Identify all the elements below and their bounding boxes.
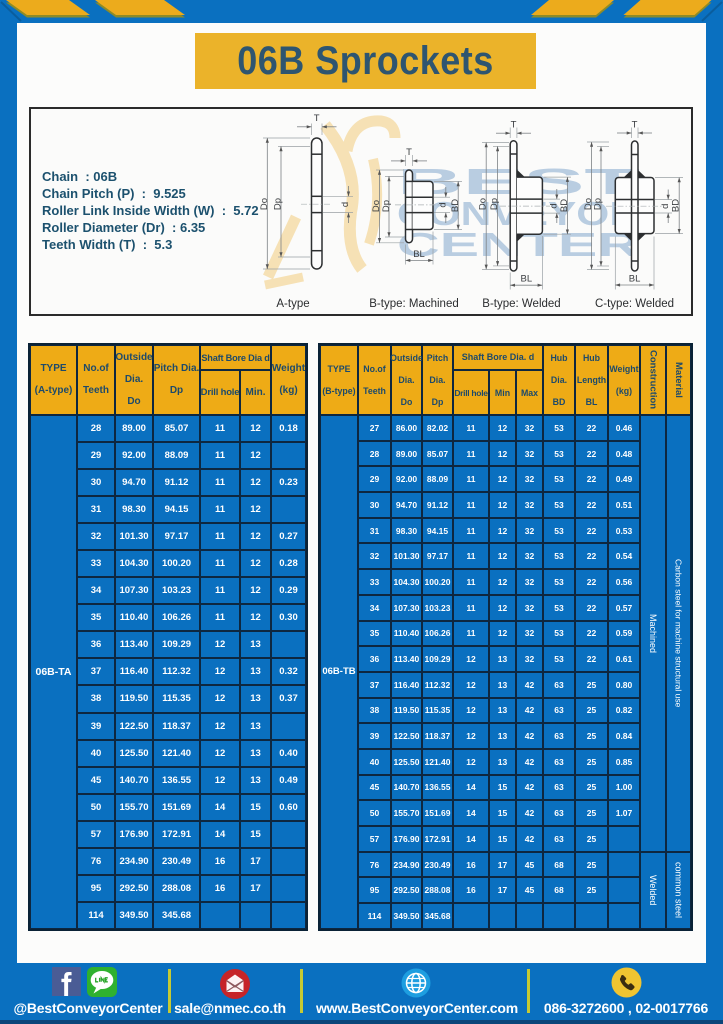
svg-text:T: T xyxy=(406,147,412,158)
svg-text:Dp: Dp xyxy=(489,198,500,210)
svg-text:C-type: Welded: C-type: Welded xyxy=(595,298,674,310)
svg-text:Dp: Dp xyxy=(273,198,284,210)
svg-text:Do: Do xyxy=(478,198,489,210)
svg-text:A-type: A-type xyxy=(276,298,309,310)
svg-text:BL: BL xyxy=(520,274,532,285)
svg-text:T: T xyxy=(314,113,320,124)
svg-text:d: d xyxy=(438,202,449,207)
svg-text:T: T xyxy=(511,120,517,131)
svg-text:B-type: Machined: B-type: Machined xyxy=(369,298,459,310)
svg-text:Dp: Dp xyxy=(593,198,604,210)
svg-text:d: d xyxy=(340,202,351,207)
svg-text:Dp: Dp xyxy=(381,200,392,212)
svg-text:BD: BD xyxy=(450,199,461,212)
svg-text:B-type: Welded: B-type: Welded xyxy=(482,298,560,310)
svg-text:T: T xyxy=(632,120,638,131)
svg-text:BD: BD xyxy=(559,199,570,212)
svg-text:d: d xyxy=(660,204,671,209)
svg-text:BD: BD xyxy=(671,199,682,212)
svg-text:d: d xyxy=(549,203,560,208)
svg-text:Do: Do xyxy=(259,198,270,210)
svg-text:BL: BL xyxy=(413,249,425,260)
svg-text:BL: BL xyxy=(629,274,641,285)
